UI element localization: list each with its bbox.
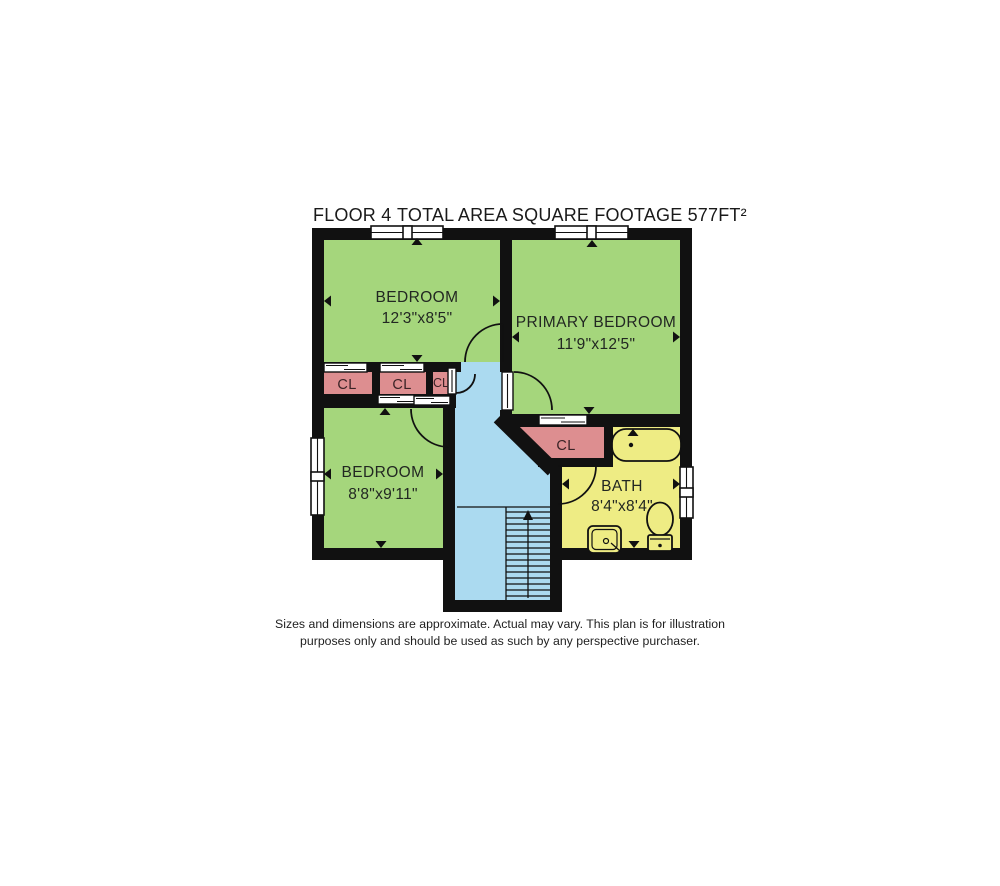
disclaimer-line-2: purposes only and should be used as such… [300,634,700,648]
bedroom-top-label: BEDROOM [376,289,459,306]
bedroom-top-dims: 12'3"x8'5" [382,310,453,327]
window-bath [680,467,693,518]
primary-door-opening [502,372,513,410]
bedroom-bottom-label: BEDROOM [342,464,425,481]
closet-bath-label: CL [556,438,575,454]
window-bedroom-top [371,226,443,239]
sink-icon [588,526,621,553]
window-primary-bedroom [555,226,628,239]
primary-bedroom-dims: 11'9"x12'5" [557,336,636,353]
closet-1-door [324,363,367,372]
bathtub-icon [612,429,681,461]
floor-title: FLOOR 4 [313,205,391,225]
bath-dims: 8'4"x8'4" [591,498,653,515]
primary-bedroom-label: PRIMARY BEDROOM [516,314,676,331]
closet-3-label: CL [433,376,449,390]
closet-2-door-bottom [378,395,419,404]
wall-stair-bottom [443,600,562,612]
bedroom-bottom-dims: 8'8"x9'11" [348,486,418,503]
closet-2-label: CL [392,377,411,393]
area-title: TOTAL AREA SQUARE FOOTAGE 577FT² [397,205,747,225]
bath-label: BATH [601,478,643,495]
floor-plan-svg: FLOOR 4 TOTAL AREA SQUARE FOOTAGE 577FT²… [0,0,1000,886]
closet-2-door-top [380,363,424,372]
wall-between-bedrooms [500,228,512,372]
wall-bottom-left [312,548,455,560]
wall-bath-left [550,460,562,560]
bedroom-bottom-door-opening [414,396,450,405]
disclaimer-line-1: Sizes and dimensions are approximate. Ac… [275,617,725,631]
window-bedroom-bottom [311,438,324,515]
closet-3-door [448,368,456,394]
wall-primary-bottom [500,414,692,427]
closet-bath-door [539,415,587,425]
closet-1-label: CL [337,377,356,393]
floor-plan-page: FLOOR 4 TOTAL AREA SQUARE FOOTAGE 577FT²… [0,0,1000,886]
